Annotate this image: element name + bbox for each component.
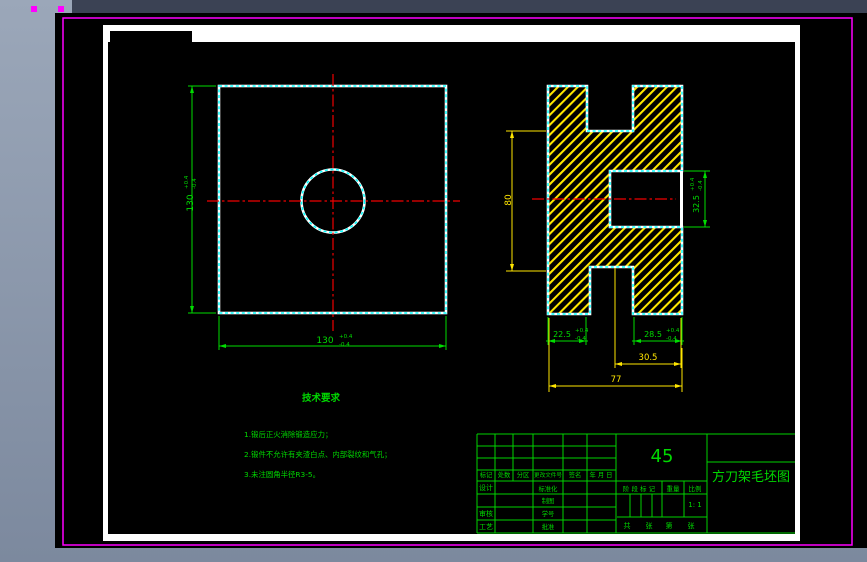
- dim-lower-tol: -0.4: [698, 180, 704, 191]
- model-space-canvas: [55, 13, 867, 548]
- label-weight: 重量: [667, 485, 681, 493]
- dim-upper-tol: +0.4: [339, 334, 353, 340]
- label-stage-mark: 阶 段 标 记: [623, 484, 656, 493]
- dim-lower-tol: -0.4: [666, 336, 677, 342]
- dim-lower-tol: -0.4: [192, 178, 198, 189]
- material-designation: 45: [651, 446, 674, 467]
- scale-value: 1: 1: [688, 501, 702, 509]
- sheet-number-label: 第: [666, 521, 673, 530]
- tech-requirement-item: 2.锻件不允许有夹渣白点、内部裂纹和气孔；: [244, 450, 391, 459]
- dim-value: 22.5: [553, 330, 571, 339]
- dim-upper-tol: +0.4: [184, 175, 190, 189]
- header-count: 处数: [498, 470, 511, 479]
- sheet-number-unit: 张: [688, 521, 695, 530]
- header-change-doc: 更改文件号: [534, 471, 562, 479]
- dim-upper-tol: +0.4: [666, 328, 680, 334]
- top-strip: [72, 0, 867, 13]
- dim-lower-tol: -0.4: [339, 342, 350, 348]
- section-total-width-dimension-text: 77: [611, 375, 622, 385]
- section-offset-dimension-text: 30.5: [639, 353, 658, 363]
- tech-requirements-title: 技术要求: [302, 392, 341, 404]
- cad-viewport: 130 +0.4 -0.4 130 +0.4 -0.4 80: [0, 0, 867, 562]
- dim-lower-tol: -0.4: [575, 336, 586, 342]
- tech-requirement-item: 1.锻后正火消除锻造应力；: [244, 430, 332, 439]
- section-height-dimension-text: 80: [504, 194, 514, 206]
- dim-value: 28.5: [644, 330, 662, 339]
- label-design: 设计: [479, 483, 493, 492]
- label-student-no: 学号: [542, 509, 555, 518]
- dim-value: 80: [504, 194, 514, 206]
- sheet-border-notch: [110, 31, 192, 42]
- label-scale: 比例: [689, 484, 702, 493]
- label-approve: 批准: [542, 522, 555, 531]
- sheet-total-unit: 张: [646, 521, 653, 530]
- dim-upper-tol: +0.4: [690, 177, 696, 191]
- label-standardization: 标准化: [539, 484, 559, 493]
- header-date: 年 月 日: [590, 470, 613, 479]
- drawing-title: 方刀架毛坯图: [712, 469, 790, 485]
- dim-value: 32.5: [692, 195, 701, 213]
- label-check: 审核: [479, 509, 493, 518]
- selection-grip[interactable]: [31, 6, 37, 12]
- dim-value: 130: [316, 336, 333, 346]
- drawing-canvas: 130 +0.4 -0.4 130 +0.4 -0.4 80: [0, 0, 867, 562]
- selection-grip[interactable]: [58, 6, 64, 12]
- header-zone: 分区: [517, 470, 530, 479]
- tech-requirement-item: 3.未注圆角半径R3-5。: [244, 470, 320, 479]
- header-signature: 签名: [569, 470, 582, 479]
- label-drafting: 制图: [542, 496, 555, 505]
- dim-value: 130: [186, 194, 196, 211]
- label-process: 工艺: [479, 523, 493, 531]
- sheet-total-label: 共: [624, 521, 631, 530]
- dim-upper-tol: +0.4: [575, 328, 589, 334]
- header-mark: 标记: [480, 470, 493, 479]
